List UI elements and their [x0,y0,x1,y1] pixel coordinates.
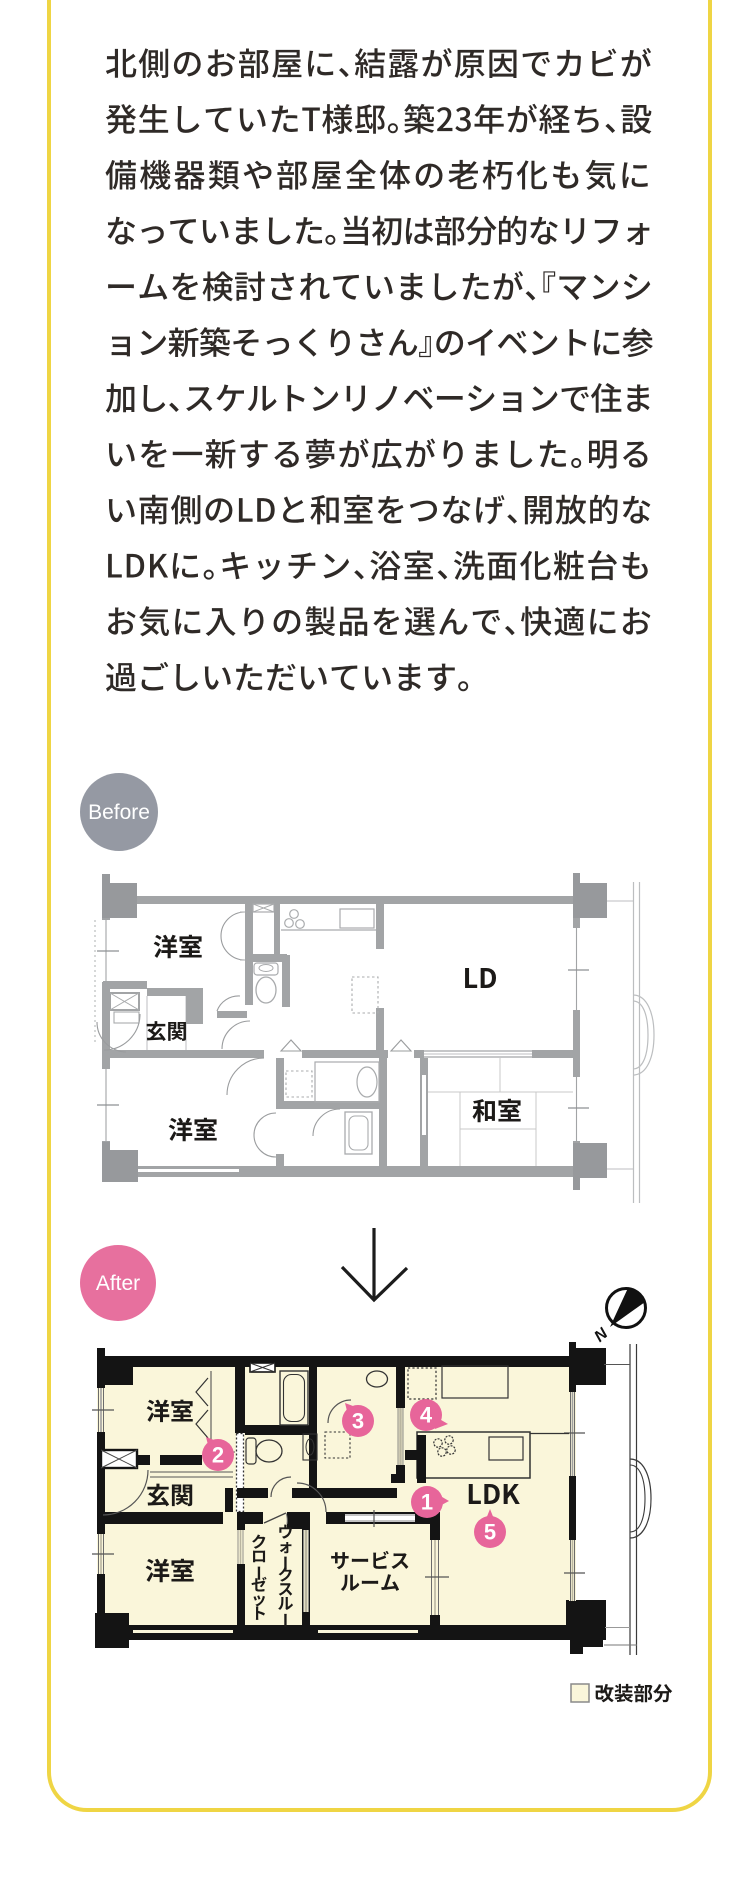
svg-text:5: 5 [484,1520,496,1545]
svg-text:4: 4 [420,1403,433,1428]
svg-text:1: 1 [421,1490,433,1515]
svg-text:2: 2 [212,1443,224,1468]
svg-text:N: N [591,1325,611,1346]
svg-text:After: After [96,1272,140,1295]
svg-text:3: 3 [352,1409,364,1434]
svg-text:Before: Before [88,801,150,824]
